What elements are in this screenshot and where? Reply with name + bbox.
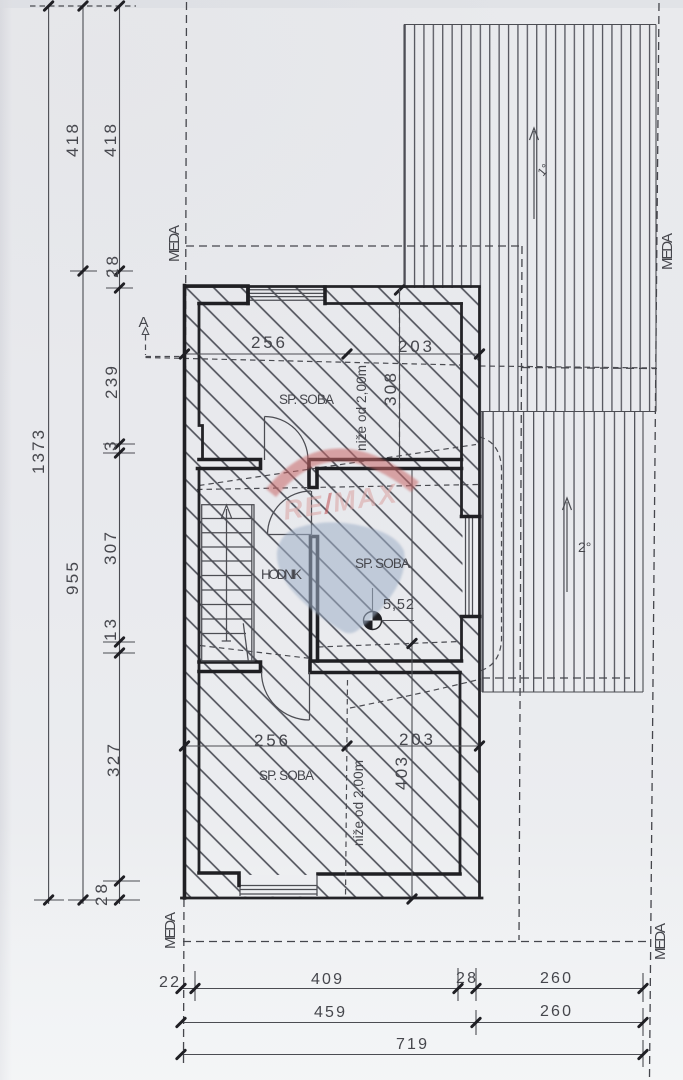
svg-text:260: 260	[540, 970, 571, 987]
svg-text:418: 418	[63, 124, 82, 157]
svg-text:327: 327	[104, 744, 123, 777]
svg-text:3: 3	[101, 442, 120, 451]
svg-text:2°: 2°	[578, 539, 591, 555]
svg-text:719: 719	[396, 1036, 427, 1053]
svg-text:niže od 2,00m: niže od 2,00m	[351, 760, 366, 846]
svg-text:MEDA: MEDA	[652, 923, 669, 960]
svg-text:203: 203	[399, 730, 433, 749]
svg-text:418: 418	[101, 124, 120, 157]
svg-text:MEDA: MEDA	[166, 225, 183, 262]
svg-text:239: 239	[102, 366, 121, 399]
svg-text:403: 403	[392, 757, 411, 790]
svg-text:459: 459	[314, 1004, 345, 1021]
svg-text:307: 307	[101, 532, 120, 565]
svg-text:HODNIK: HODNIK	[261, 567, 302, 582]
svg-text:MEDA: MEDA	[162, 912, 179, 949]
svg-text:203: 203	[398, 337, 432, 356]
svg-text:955: 955	[63, 562, 82, 595]
svg-text:256: 256	[254, 731, 288, 750]
svg-text:SP. SOBA: SP. SOBA	[355, 556, 410, 571]
svg-text:SP. SOBA: SP. SOBA	[279, 392, 334, 407]
svg-text:260: 260	[540, 1003, 571, 1020]
svg-text:409: 409	[311, 971, 342, 988]
svg-text:SP. SOBA: SP. SOBA	[259, 768, 314, 783]
svg-text:niže od 2,00m: niže od 2,00m	[354, 365, 369, 451]
svg-text:5,52: 5,52	[383, 597, 414, 613]
svg-text:256: 256	[251, 333, 285, 352]
svg-text:MEDA: MEDA	[659, 233, 676, 270]
svg-text:A: A	[139, 314, 149, 331]
svg-text:308: 308	[381, 373, 400, 406]
